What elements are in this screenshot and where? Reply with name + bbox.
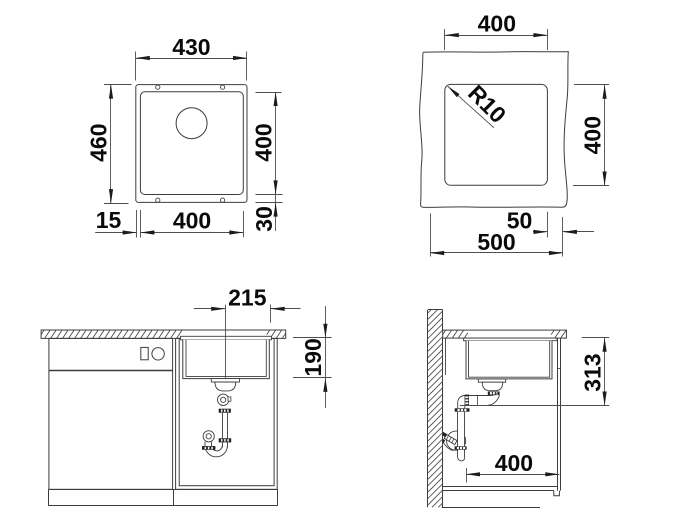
- svg-text:430: 430: [172, 34, 210, 60]
- svg-text:400: 400: [250, 123, 276, 161]
- svg-text:460: 460: [86, 124, 112, 162]
- svg-text:400: 400: [478, 10, 516, 36]
- svg-text:500: 500: [477, 229, 515, 255]
- svg-text:313: 313: [579, 353, 605, 391]
- svg-text:400: 400: [495, 450, 533, 476]
- svg-text:215: 215: [228, 284, 267, 310]
- svg-text:30: 30: [251, 206, 277, 232]
- svg-text:400: 400: [579, 116, 605, 154]
- svg-text:190: 190: [300, 338, 326, 376]
- svg-text:400: 400: [173, 207, 211, 233]
- svg-text:15: 15: [96, 207, 122, 233]
